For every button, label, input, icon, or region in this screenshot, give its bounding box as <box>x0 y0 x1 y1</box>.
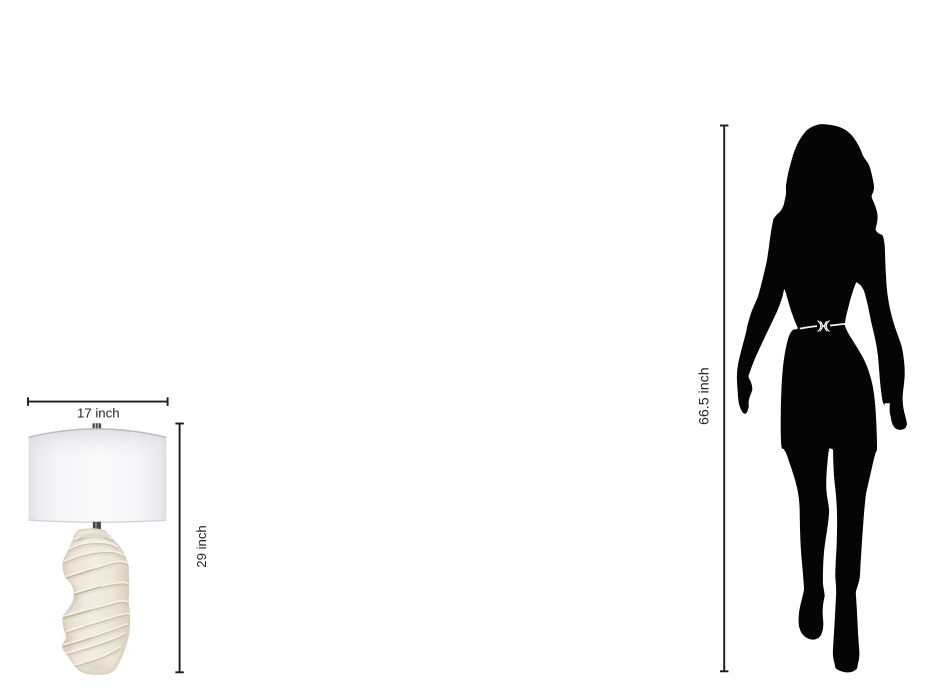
svg-text:29 inch: 29 inch <box>194 525 209 568</box>
svg-text:66.5 inch: 66.5 inch <box>697 367 713 425</box>
svg-text:17 inch: 17 inch <box>77 405 120 420</box>
